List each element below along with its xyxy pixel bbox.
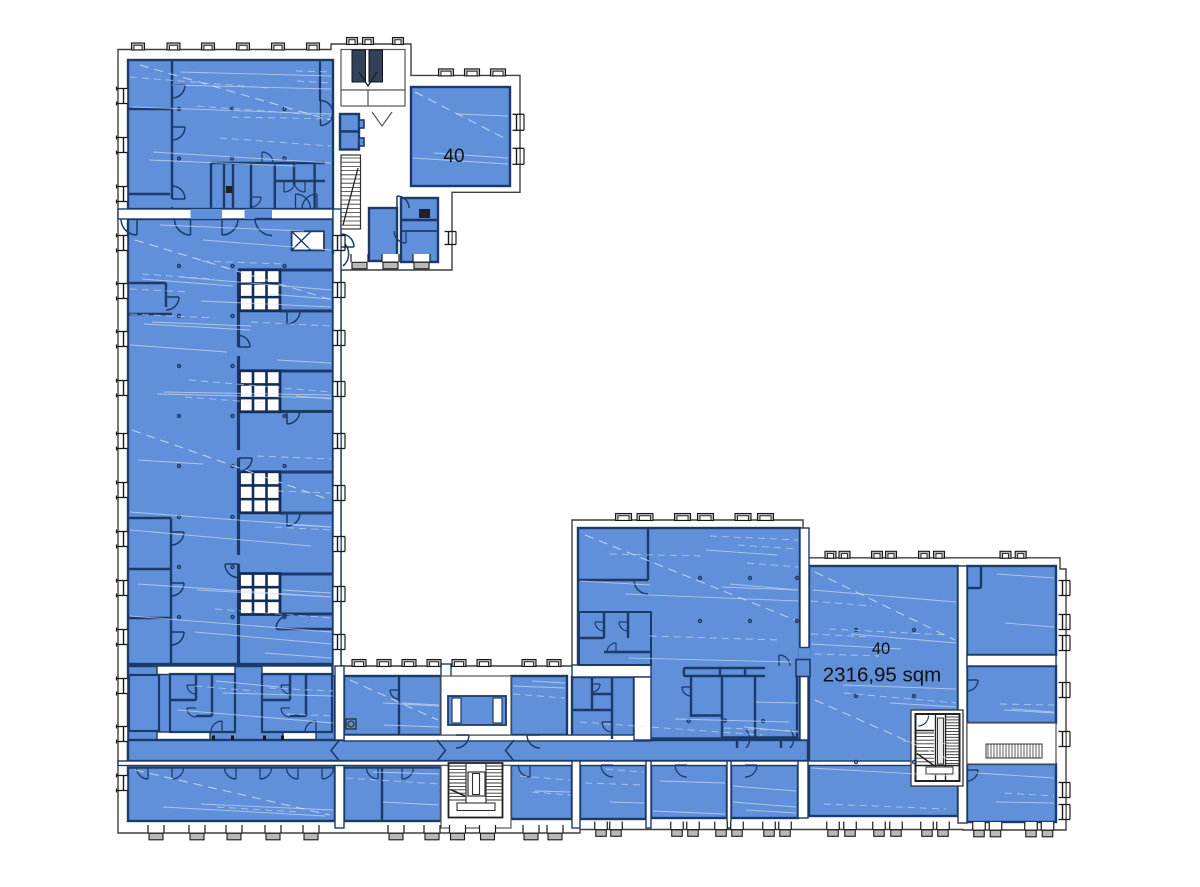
svg-text:40: 40 [872,640,890,658]
svg-text:2316,95 sqm: 2316,95 sqm [823,664,942,687]
svg-text:40: 40 [443,146,464,167]
